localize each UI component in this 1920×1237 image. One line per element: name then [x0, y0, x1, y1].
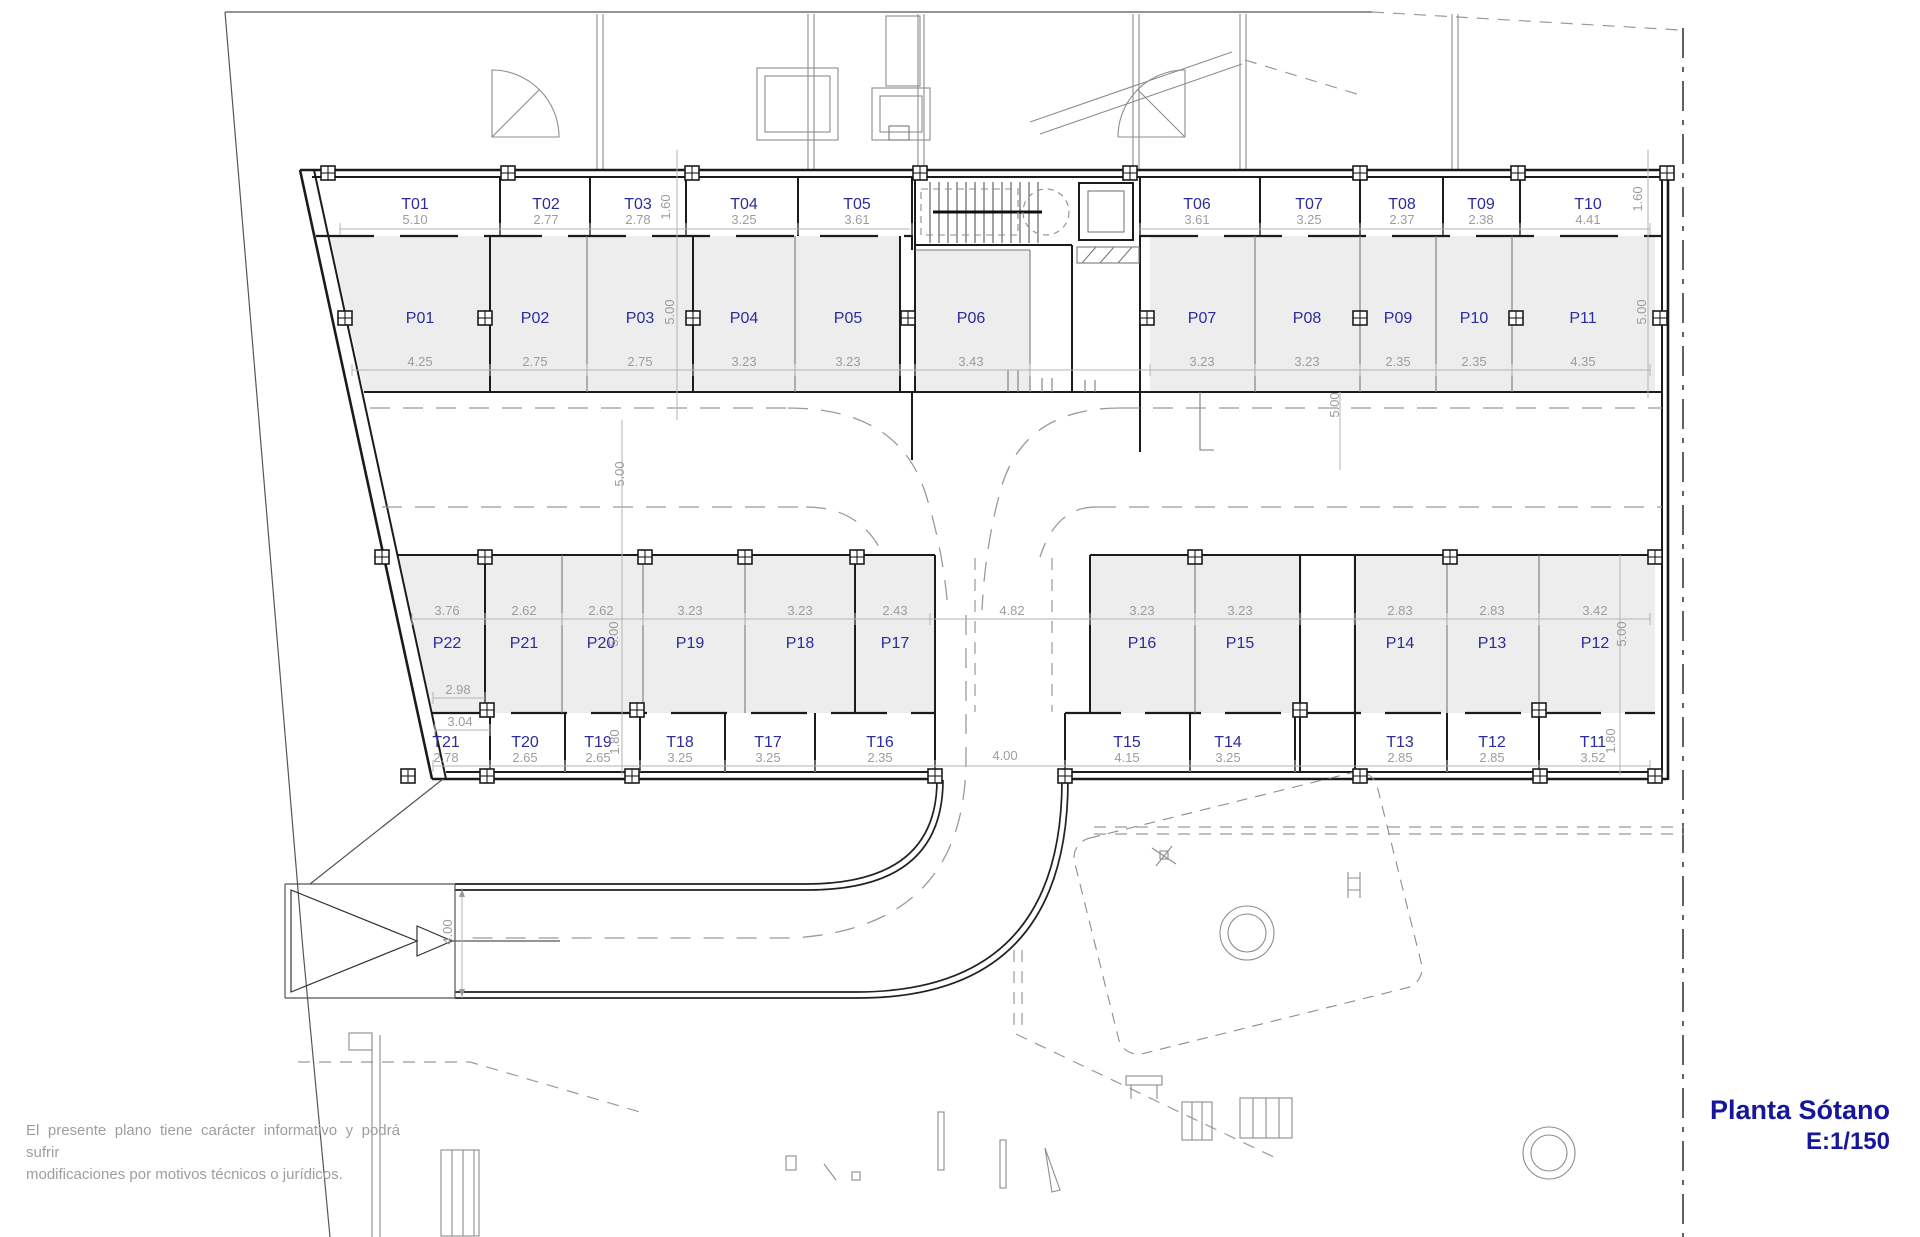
stall-P08-label: P08 — [1293, 310, 1322, 327]
stall-P06-label: P06 — [957, 310, 986, 327]
room-T12-label: T12 — [1478, 734, 1506, 751]
stall-P06-dim: 3.43 — [958, 354, 983, 369]
stall-P09-label: P09 — [1384, 310, 1413, 327]
stall-P12-label: P12 — [1581, 635, 1610, 652]
stall-P14-dim: 2.83 — [1387, 603, 1412, 618]
dim-storage-top-right: 1.60 — [1630, 186, 1645, 211]
room-T06-dim: 3.61 — [1184, 212, 1209, 227]
stall-P11-label: P11 — [1569, 310, 1596, 327]
stall-P01-dim: 4.25 — [407, 354, 432, 369]
stall-P07-dim: 3.23 — [1189, 354, 1214, 369]
ramp-arrow — [291, 890, 417, 992]
dim-parking-top-left: 5.00 — [662, 299, 677, 324]
stall-P22-dim: 3.76 — [434, 603, 459, 618]
stall-P15-dim: 3.23 — [1227, 603, 1252, 618]
room-T14-dim: 3.25 — [1215, 750, 1240, 765]
room-T12-dim: 2.85 — [1479, 750, 1504, 765]
pool-ladder-icon — [1348, 872, 1360, 898]
room-T06-label: T06 — [1183, 196, 1211, 213]
floor-plan-page: T01 5.10 T02 2.77 T03 2.78 T04 3.25 T05 … — [0, 0, 1920, 1237]
stall-P10-dim: 2.35 — [1461, 354, 1486, 369]
floor-plan-drawing: T01 5.10 T02 2.77 T03 2.78 T04 3.25 T05 … — [0, 0, 1920, 1237]
room-T18-dim: 3.25 — [667, 750, 692, 765]
stall-P19-dim: 3.23 — [677, 603, 702, 618]
room-T09-dim: 2.38 — [1468, 212, 1493, 227]
room-T01-dim: 5.10 — [402, 212, 427, 227]
room-T04-dim: 3.25 — [731, 212, 756, 227]
room-T20-label: T20 — [511, 734, 539, 751]
dim-ramp-width: 4.00 — [440, 919, 455, 944]
dim-driveway-left: 5.00 — [612, 461, 627, 486]
room-T14-label: T14 — [1214, 734, 1242, 751]
stall-P15-label: P15 — [1226, 635, 1255, 652]
room-T05-dim: 3.61 — [844, 212, 869, 227]
dim-driveway-right: 5.00 — [1327, 392, 1342, 417]
stall-P04-dim: 3.23 — [731, 354, 756, 369]
room-T16-dim: 2.35 — [867, 750, 892, 765]
stall-P11-dim: 4.35 — [1570, 354, 1595, 369]
room-T20-dim: 2.65 — [512, 750, 537, 765]
room-T05-label: T05 — [843, 196, 871, 213]
room-T01-label: T01 — [401, 196, 429, 213]
door-swing-icon — [492, 70, 559, 137]
ramp-gap-dim: 4.00 — [992, 748, 1017, 763]
stall-P21-dim: 2.62 — [511, 603, 536, 618]
stall-P22-label: P22 — [433, 635, 462, 652]
access-road — [285, 779, 1068, 998]
stall-P17-dim: 2.43 — [882, 603, 907, 618]
plan-scale: E:1/150 — [1710, 1126, 1890, 1157]
elevator-shaft — [1079, 183, 1133, 240]
stall-P12-dim: 3.42 — [1582, 603, 1607, 618]
room-T13-dim: 2.85 — [1387, 750, 1412, 765]
title-block: Planta Sótano E:1/150 — [1710, 1094, 1890, 1158]
room-T09-label: T09 — [1467, 196, 1495, 213]
plan-title: Planta Sótano — [1710, 1094, 1890, 1126]
stall-P13-dim: 2.83 — [1479, 603, 1504, 618]
room-T16-label: T16 — [866, 734, 894, 751]
stall-P09-dim: 2.35 — [1385, 354, 1410, 369]
site-top-decorations — [492, 14, 1458, 170]
room-T17-dim: 3.25 — [755, 750, 780, 765]
stall-P19-label: P19 — [676, 635, 705, 652]
room-T08-dim: 2.37 — [1389, 212, 1414, 227]
disclaimer-line-1: El presente plano tiene carácter informa… — [26, 1120, 400, 1164]
room-T08-label: T08 — [1388, 196, 1416, 213]
pool-outline — [1070, 768, 1426, 1059]
stall-P22-extra-dim: 2.98 — [445, 682, 470, 697]
staircase — [921, 182, 1069, 243]
room-T15-dim: 4.15 — [1114, 750, 1139, 765]
room-T21-extra-dim: 3.04 — [447, 714, 472, 729]
room-T15-label: T15 — [1113, 734, 1141, 751]
dim-storage-top-left: 1.60 — [658, 194, 673, 219]
stall-P18-dim: 3.23 — [787, 603, 812, 618]
stall-P02-dim: 2.75 — [522, 354, 547, 369]
dim-storage-bottom-right: 1.80 — [1603, 728, 1618, 753]
stall-P04-label: P04 — [730, 310, 759, 327]
disclaimer-line-2: modificaciones por motivos técnicos o ju… — [26, 1164, 400, 1186]
stall-P07-label: P07 — [1188, 310, 1217, 327]
stall-P10-label: P10 — [1460, 310, 1489, 327]
room-T11-dim: 3.52 — [1580, 750, 1605, 765]
room-T21-dim: 2.78 — [433, 750, 458, 765]
bench-icon — [1126, 1076, 1162, 1085]
stall-P16-dim: 3.23 — [1129, 603, 1154, 618]
stall-P18-label: P18 — [786, 635, 815, 652]
stall-P02-label: P02 — [521, 310, 550, 327]
elevator-cab — [1088, 191, 1124, 232]
room-T17-label: T17 — [754, 734, 782, 751]
stall-P17-label: P17 — [881, 635, 910, 652]
disclaimer-note: El presente plano tiene carácter informa… — [26, 1120, 400, 1185]
elevator — [1077, 183, 1139, 263]
room-T07-label: T07 — [1295, 196, 1323, 213]
stall-P03-dim: 2.75 — [627, 354, 652, 369]
room-T03-label: T03 — [624, 196, 652, 213]
stall-P01-label: P01 — [406, 310, 435, 327]
room-T10-dim: 4.41 — [1575, 212, 1600, 227]
stall-P08-dim: 3.23 — [1294, 354, 1319, 369]
stall-P03-label: P03 — [626, 310, 655, 327]
room-T07-dim: 3.25 — [1296, 212, 1321, 227]
stall-P05-label: P05 — [834, 310, 863, 327]
room-T10-label: T10 — [1574, 196, 1602, 213]
stall-P14-label: P14 — [1386, 635, 1415, 652]
room-T02-label: T02 — [532, 196, 560, 213]
drive-gap-dim: 4.82 — [999, 603, 1024, 618]
room-T18-label: T18 — [666, 734, 694, 751]
dim-storage-bottom-left: 1.80 — [607, 729, 622, 754]
stall-P16-label: P16 — [1128, 635, 1157, 652]
site-garden-decorations — [298, 768, 1684, 1237]
room-T04-label: T04 — [730, 196, 758, 213]
stall-P20-dim: 2.62 — [588, 603, 613, 618]
dim-parking-top-right: 5.00 — [1634, 299, 1649, 324]
stall-P05-dim: 3.23 — [835, 354, 860, 369]
room-T03-dim: 2.78 — [625, 212, 650, 227]
room-T21-label: T21 — [432, 734, 460, 751]
room-T13-label: T13 — [1386, 734, 1414, 751]
stall-P21-label: P21 — [510, 635, 539, 652]
room-T02-dim: 2.77 — [533, 212, 558, 227]
dim-parking-bottom-right: 5.00 — [1614, 621, 1629, 646]
stall-P13-label: P13 — [1478, 635, 1507, 652]
dim-parking-bottom-left: 5.00 — [606, 621, 621, 646]
